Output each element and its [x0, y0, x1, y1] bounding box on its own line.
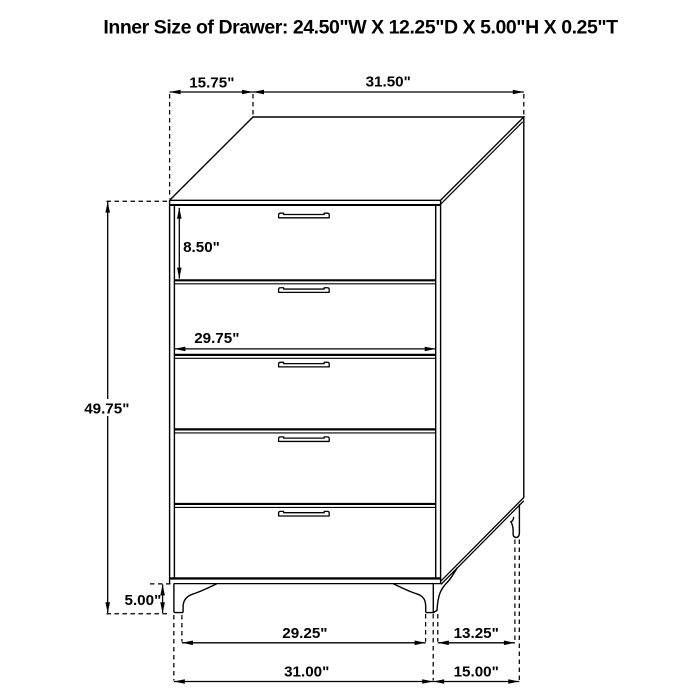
- svg-text:31.00": 31.00": [284, 664, 329, 681]
- svg-text:13.25": 13.25": [454, 625, 499, 642]
- svg-text:15.75": 15.75": [189, 74, 234, 91]
- svg-text:49.75": 49.75": [84, 401, 129, 418]
- svg-text:15.00": 15.00": [454, 664, 499, 681]
- svg-text:29.25": 29.25": [282, 625, 327, 642]
- svg-text:Inner Size of Drawer: 24.50"W: Inner Size of Drawer: 24.50"W X 12.25"D …: [103, 16, 618, 38]
- svg-text:31.50": 31.50": [366, 73, 411, 90]
- svg-text:29.75": 29.75": [194, 330, 239, 347]
- svg-text:8.50": 8.50": [183, 239, 220, 256]
- svg-text:5.00": 5.00": [125, 592, 162, 609]
